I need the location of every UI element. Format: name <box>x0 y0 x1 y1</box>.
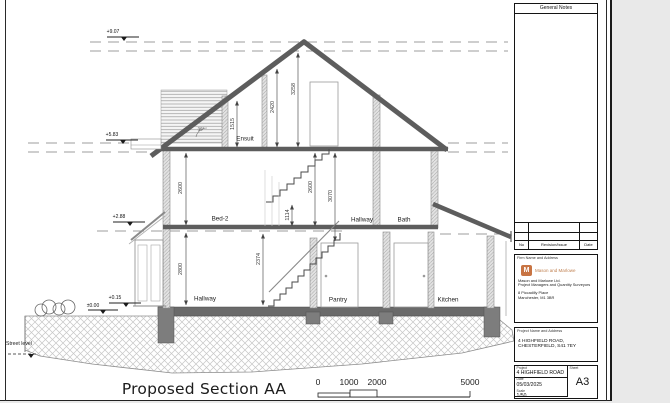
section-drawing <box>0 0 515 403</box>
neighbor-roof-stripes <box>161 90 227 143</box>
project-box: Project Name and Address 4 HIGHFIELD ROA… <box>514 327 598 362</box>
firm-section-label: Firm Name and Address <box>515 255 597 261</box>
level-eaves: +5.83 <box>106 132 119 138</box>
info-date-cell: Date 05/03/2025 <box>515 378 567 390</box>
paper-inner-edge <box>606 0 607 401</box>
sheet-title: Proposed Section AA <box>122 380 286 398</box>
firm-details: Mason and Marlowe Ltd. Project Managers … <box>518 279 597 301</box>
info-sheet-cell: Sheet A3 <box>567 366 597 397</box>
revision-col-date: Date <box>579 240 597 249</box>
section-drawing-area <box>0 0 515 403</box>
revision-col-no: No <box>515 240 528 249</box>
scale-label-2000: 2000 <box>368 377 387 387</box>
level-first-floor: +2.88 <box>113 214 126 220</box>
room-label-bath: Bath <box>398 217 411 224</box>
info-sheet-size: A3 <box>568 376 597 388</box>
bushes <box>35 300 75 316</box>
firm-address2: Manchester, M1 3BR <box>518 296 597 301</box>
info-box: Project 4 HIGHFIELD ROAD Sheet A3 Date 0… <box>514 365 598 399</box>
dim-2374: 2374 <box>256 253 262 265</box>
general-notes-title: General Notes <box>515 4 597 14</box>
mason-marlowe-logo-icon: M <box>521 265 532 276</box>
earth-hatch <box>25 316 514 373</box>
firm-logo-row: M Mason and Marlowe <box>521 265 597 276</box>
bay-window <box>129 139 166 306</box>
revision-table: No Revision/Issue Date <box>515 222 597 249</box>
info-sheet-label: Sheet <box>568 366 597 370</box>
revision-col-name: Revision/Issue <box>528 240 579 249</box>
dim-3070: 3070 <box>328 190 334 202</box>
room-label-hallway-first: Hallway <box>351 217 373 224</box>
drawing-sheet-view: Ensuit Bed-2 Hallway Bath Hallway Pantry… <box>0 0 670 403</box>
info-project-cell: Project 4 HIGHFIELD ROAD <box>515 366 567 378</box>
dim-2600-stair: 2600 <box>308 181 314 193</box>
stair-upper-flight <box>266 149 329 202</box>
level-ridge: +9.07 <box>107 29 120 35</box>
general-notes-box: General Notes No Revision/Issue Date <box>514 3 598 250</box>
level-datum: ±0.00 <box>87 303 99 309</box>
scale-label-1000: 1000 <box>340 377 359 387</box>
dim-3258: 3258 <box>291 83 297 95</box>
info-scale-cell: Scale 1/50 <box>515 389 567 397</box>
street-level-label: Street level <box>6 341 32 347</box>
room-label-ensuite: Ensuit <box>236 136 254 143</box>
room-label-bed2: Bed-2 <box>212 216 229 223</box>
dim-2420: 2420 <box>270 101 276 113</box>
project-address: 4 HIGHFIELD ROAD, CHESTERFIELD, S41 7EY <box>518 339 597 351</box>
firm-wordmark: Mason and Marlowe <box>535 268 576 273</box>
firm-box: Firm Name and Address M Mason and Marlow… <box>514 254 598 323</box>
room-label-pantry: Pantry <box>329 297 347 304</box>
info-date-value: 05/03/2025 <box>515 382 567 388</box>
dim-1515: 1515 <box>230 118 236 130</box>
room-label-kitchen: Kitchen <box>437 297 458 304</box>
scale-label-0: 0 <box>316 377 321 387</box>
project-address2: CHESTERFIELD, S41 7EY <box>518 344 597 350</box>
dim-1114: 1114 <box>285 209 291 220</box>
level-markers <box>8 37 145 358</box>
dim-2600-left: 2600 <box>178 182 184 194</box>
info-scale-value: 1/50 <box>515 393 567 397</box>
scale-bar <box>318 390 470 397</box>
info-project-value: 4 HIGHFIELD ROAD <box>515 370 567 376</box>
title-block: General Notes No Revision/Issue Date Fir… <box>514 3 600 399</box>
level-ground-floor: +0.15 <box>109 295 122 301</box>
room-label-hallway-ground: Hallway <box>194 296 216 303</box>
roof-angle-label: 35° <box>198 127 205 132</box>
scale-label-5000: 5000 <box>461 377 480 387</box>
dim-2800-left: 2800 <box>178 263 184 275</box>
firm-role: Project Managers and Quantity Surveyors <box>518 283 597 288</box>
project-section-label: Project Name and Address <box>515 328 597 334</box>
